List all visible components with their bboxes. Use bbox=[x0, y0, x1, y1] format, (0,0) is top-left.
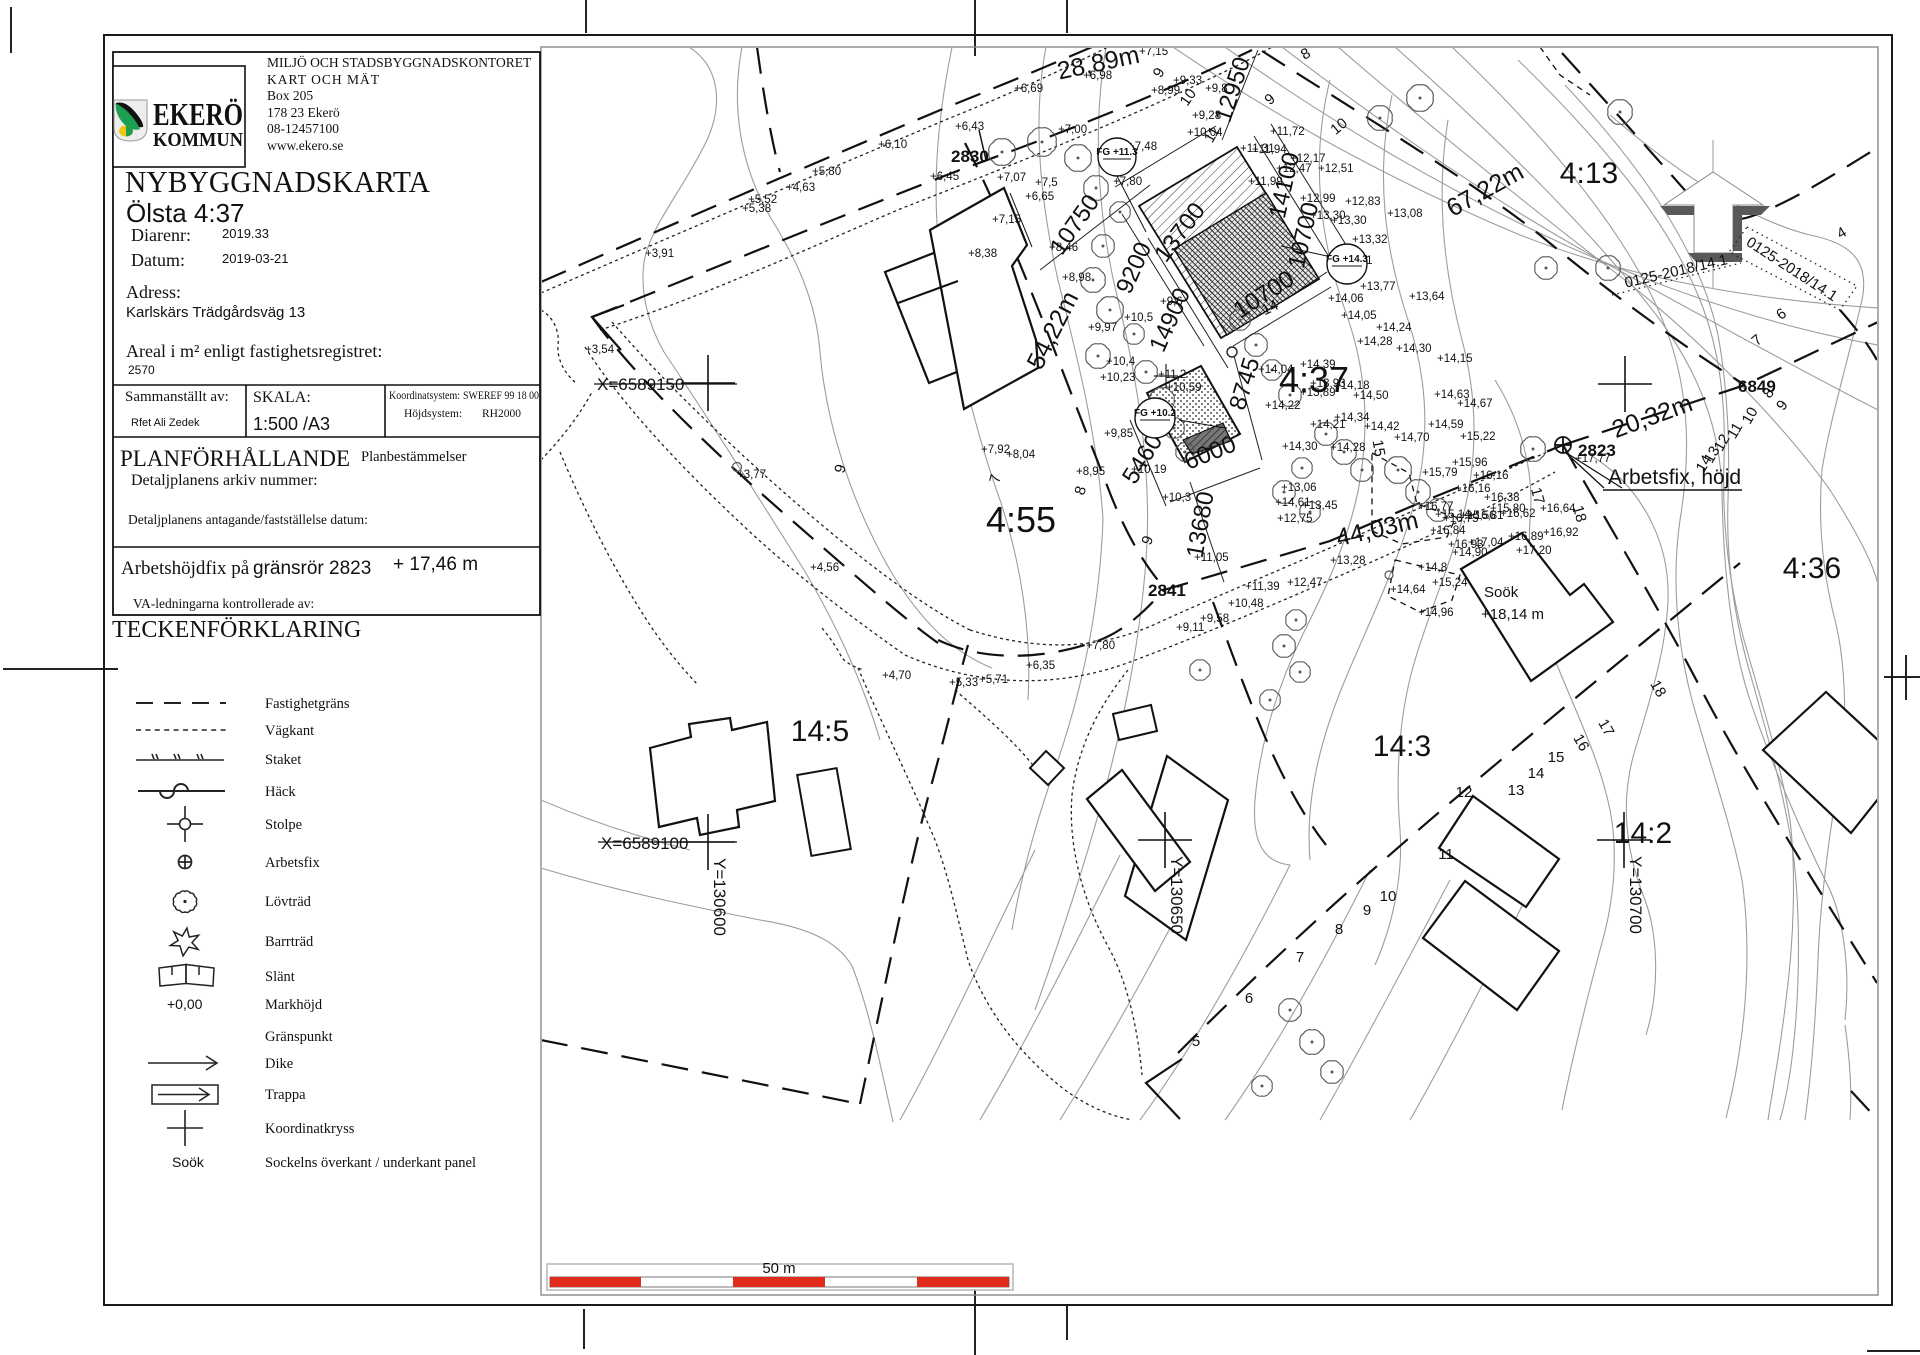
svg-text:+10,3: +10,3 bbox=[1162, 492, 1191, 504]
svg-text:Lövträd: Lövträd bbox=[265, 894, 312, 910]
svg-text:+6,69: +6,69 bbox=[1014, 83, 1043, 95]
svg-text:2841: 2841 bbox=[1148, 581, 1186, 600]
svg-text:+14,21: +14,21 bbox=[1310, 419, 1346, 431]
svg-text:+13,77: +13,77 bbox=[1360, 281, 1396, 293]
svg-text:Rfet Ali Zedek: Rfet Ali Zedek bbox=[131, 417, 200, 429]
svg-text:Arbetsfix, höjd: Arbetsfix, höjd bbox=[1608, 466, 1741, 489]
svg-text:+0,00: +0,00 bbox=[167, 996, 203, 1012]
svg-text:Häck: Häck bbox=[265, 784, 296, 800]
svg-text:+16,92: +16,92 bbox=[1543, 527, 1579, 539]
svg-text:+6,45: +6,45 bbox=[930, 171, 959, 183]
svg-text:+7,80: +7,80 bbox=[1113, 176, 1142, 188]
svg-text:Karlskärs Trädgårdsväg 13: Karlskärs Trädgårdsväg 13 bbox=[126, 304, 305, 321]
svg-text:+8,98: +8,98 bbox=[1062, 272, 1091, 284]
svg-text:Arbetshöjdfix på: Arbetshöjdfix på bbox=[121, 558, 250, 579]
svg-text:+13,45: +13,45 bbox=[1302, 500, 1338, 512]
svg-text:Detaljplanens arkiv nummer:: Detaljplanens arkiv nummer: bbox=[131, 472, 318, 489]
svg-text:+14,05: +14,05 bbox=[1341, 310, 1377, 322]
svg-text:+14,06: +14,06 bbox=[1328, 293, 1364, 305]
svg-text:2019-03-21: 2019-03-21 bbox=[222, 251, 289, 266]
svg-text:+11,31: +11,31 bbox=[1240, 143, 1275, 155]
svg-text:+14,30: +14,30 bbox=[1396, 343, 1432, 355]
svg-text:+5,80: +5,80 bbox=[812, 166, 841, 178]
svg-text:+13,30: +13,30 bbox=[1331, 215, 1367, 227]
svg-text:+14,96: +14,96 bbox=[1418, 607, 1454, 619]
svg-text:Koordinatsystem:: Koordinatsystem: bbox=[389, 390, 460, 402]
svg-text:Slänt: Slänt bbox=[265, 969, 295, 985]
svg-text:+12,51: +12,51 bbox=[1318, 163, 1354, 175]
svg-text:SWEREF 99 18 00: SWEREF 99 18 00 bbox=[463, 390, 539, 402]
svg-text:+9,97: +9,97 bbox=[1088, 322, 1117, 334]
svg-text:Adress:: Adress: bbox=[126, 282, 181, 302]
svg-text:+16,84: +16,84 bbox=[1430, 525, 1466, 537]
svg-text:www.ekero.se: www.ekero.se bbox=[267, 138, 343, 153]
svg-text:Sammanställt av:: Sammanställt av: bbox=[125, 389, 229, 405]
svg-text:2823: 2823 bbox=[1578, 441, 1616, 460]
svg-text:KART OCH MÄT: KART OCH MÄT bbox=[267, 72, 380, 87]
svg-text:+10,48: +10,48 bbox=[1228, 598, 1264, 610]
svg-text:+3,54: +3,54 bbox=[585, 344, 615, 356]
svg-text:+10,59: +10,59 bbox=[1166, 382, 1202, 394]
svg-text:Areal i m² enligt fastighetsre: Areal i m² enligt fastighetsregistret: bbox=[126, 341, 382, 361]
svg-text:Box 205: Box 205 bbox=[267, 88, 313, 103]
svg-text:X=6589150: X=6589150 bbox=[597, 375, 684, 394]
svg-text:Trappa: Trappa bbox=[265, 1087, 306, 1103]
svg-text:+ 17,46 m: + 17,46 m bbox=[393, 554, 478, 575]
svg-text:+14,67: +14,67 bbox=[1457, 398, 1493, 410]
svg-text:+12,83: +12,83 bbox=[1345, 196, 1381, 208]
svg-text:+7,15: +7,15 bbox=[992, 214, 1021, 226]
svg-text:+9,58: +9,58 bbox=[1200, 613, 1229, 625]
svg-text:+8,99: +8,99 bbox=[1151, 85, 1180, 97]
svg-text:+12,47: +12,47 bbox=[1287, 577, 1323, 589]
svg-text:Planbestämmelser: Planbestämmelser bbox=[361, 449, 467, 465]
svg-text:gränsrör 2823: gränsrör 2823 bbox=[253, 558, 371, 579]
svg-text:+5,33: +5,33 bbox=[949, 677, 978, 689]
svg-text:+15,56: +15,56 bbox=[1460, 510, 1496, 522]
svg-text:8: 8 bbox=[1335, 921, 1343, 938]
svg-text:TECKENFÖRKLARING: TECKENFÖRKLARING bbox=[112, 617, 361, 643]
svg-text:+13,06: +13,06 bbox=[1281, 482, 1317, 494]
svg-text:VA-ledningarna kontrollerade a: VA-ledningarna kontrollerade av: bbox=[133, 596, 314, 611]
svg-text:5: 5 bbox=[1192, 1033, 1200, 1050]
svg-text:4:37: 4:37 bbox=[1279, 359, 1349, 400]
svg-text:+9,11: +9,11 bbox=[1176, 622, 1204, 634]
svg-text:9: 9 bbox=[1363, 902, 1371, 919]
svg-text:15: 15 bbox=[1369, 439, 1389, 458]
svg-text:+14,64: +14,64 bbox=[1390, 584, 1426, 596]
svg-text:15: 15 bbox=[1548, 749, 1565, 766]
svg-text:Soök: Soök bbox=[1484, 584, 1519, 601]
svg-text:+11,72: +11,72 bbox=[1270, 126, 1305, 138]
svg-text:KOMMUN: KOMMUN bbox=[153, 129, 244, 151]
svg-text:+7,00: +7,00 bbox=[1058, 124, 1087, 136]
svg-text:Staket: Staket bbox=[265, 752, 301, 768]
svg-text:SKALA:: SKALA: bbox=[253, 389, 311, 406]
svg-text:+6,35: +6,35 bbox=[1026, 660, 1055, 672]
svg-text:+13,28: +13,28 bbox=[1330, 555, 1366, 567]
svg-text:+18,14 m: +18,14 m bbox=[1481, 606, 1544, 623]
svg-text:Gränspunkt: Gränspunkt bbox=[265, 1029, 333, 1045]
svg-text:+4,63: +4,63 bbox=[786, 182, 815, 194]
svg-text:+4,56: +4,56 bbox=[810, 562, 839, 574]
svg-text:+8,04: +8,04 bbox=[1006, 449, 1036, 461]
svg-text:Barrträd: Barrträd bbox=[265, 934, 314, 950]
svg-text:+12,75: +12,75 bbox=[1277, 513, 1313, 525]
svg-text:+11,39: +11,39 bbox=[1245, 581, 1280, 593]
svg-text:+16,16: +16,16 bbox=[1473, 470, 1509, 482]
svg-text:+7,5: +7,5 bbox=[1035, 177, 1058, 189]
svg-text:6849: 6849 bbox=[1738, 377, 1776, 396]
svg-text:FG +14.3: FG +14.3 bbox=[1326, 254, 1368, 265]
svg-text:+15,24: +15,24 bbox=[1432, 577, 1468, 589]
svg-text:4:13: 4:13 bbox=[1560, 157, 1618, 190]
svg-text:10: 10 bbox=[1380, 888, 1397, 905]
svg-text:+13,64: +13,64 bbox=[1409, 291, 1445, 303]
svg-text:+4,70: +4,70 bbox=[882, 670, 911, 682]
svg-text:08-12457100: 08-12457100 bbox=[267, 121, 339, 136]
svg-text:+3,77: +3,77 bbox=[737, 469, 766, 481]
svg-text:178 23 Ekerö: 178 23 Ekerö bbox=[267, 105, 340, 120]
svg-text:Diarenr:: Diarenr: bbox=[131, 225, 191, 245]
svg-text:14:2: 14:2 bbox=[1614, 817, 1672, 850]
svg-text:PLANFÖRHÅLLANDE: PLANFÖRHÅLLANDE bbox=[120, 446, 350, 471]
svg-text:+10,23: +10,23 bbox=[1100, 372, 1136, 384]
svg-text:+11,2: +11,2 bbox=[1158, 369, 1186, 381]
svg-text:+14,70: +14,70 bbox=[1394, 432, 1430, 444]
svg-text:+14,30: +14,30 bbox=[1282, 441, 1318, 453]
svg-text:+14,15: +14,15 bbox=[1437, 353, 1473, 365]
svg-text:Ölsta 4:37: Ölsta 4:37 bbox=[126, 198, 245, 228]
svg-text:Y=130600: Y=130600 bbox=[710, 858, 729, 936]
svg-text:FG +10.2: FG +10.2 bbox=[1134, 408, 1176, 419]
svg-text:+8,95: +8,95 bbox=[1076, 466, 1105, 478]
svg-text:+15,22: +15,22 bbox=[1460, 431, 1496, 443]
svg-text:EKERÖ: EKERÖ bbox=[153, 96, 243, 132]
svg-text:13: 13 bbox=[1508, 782, 1525, 799]
svg-text:+14,28: +14,28 bbox=[1330, 442, 1366, 454]
svg-text:+5,38: +5,38 bbox=[742, 203, 771, 215]
svg-text:+7,07: +7,07 bbox=[997, 172, 1026, 184]
svg-text:+14,59: +14,59 bbox=[1428, 419, 1464, 431]
svg-text:14:5: 14:5 bbox=[791, 715, 849, 748]
svg-text:+16,89: +16,89 bbox=[1508, 531, 1544, 543]
svg-text:Arbetsfix: Arbetsfix bbox=[265, 855, 321, 871]
svg-text:Koordinatkryss: Koordinatkryss bbox=[265, 1121, 355, 1137]
svg-text:FG +11.3: FG +11.3 bbox=[1096, 147, 1138, 158]
svg-text:+10,5: +10,5 bbox=[1124, 312, 1153, 324]
svg-text:+6,10: +6,10 bbox=[878, 139, 907, 151]
svg-text:1:500 /A3: 1:500 /A3 bbox=[253, 414, 330, 434]
svg-text:14: 14 bbox=[1528, 765, 1545, 782]
svg-text:2570: 2570 bbox=[128, 363, 155, 377]
svg-text:14:3: 14:3 bbox=[1373, 730, 1431, 763]
svg-text:12: 12 bbox=[1456, 784, 1473, 801]
svg-text:+14,90: +14,90 bbox=[1452, 547, 1488, 559]
svg-text:NYBYGGNADSKARTA: NYBYGGNADSKARTA bbox=[125, 164, 431, 199]
svg-text:Vägkant: Vägkant bbox=[265, 723, 314, 739]
svg-text:11: 11 bbox=[1438, 846, 1454, 863]
svg-text:+14,8: +14,8 bbox=[1418, 562, 1447, 574]
svg-text:X=6589100: X=6589100 bbox=[601, 834, 688, 853]
svg-text:+13,08: +13,08 bbox=[1387, 208, 1423, 220]
svg-text:Sockelns överkant / underkant: Sockelns överkant / underkant panel bbox=[265, 1155, 476, 1171]
svg-text:+14,28: +14,28 bbox=[1357, 336, 1393, 348]
svg-text:+7,92: +7,92 bbox=[981, 444, 1010, 456]
svg-text:+14,24: +14,24 bbox=[1376, 322, 1412, 334]
svg-text:+14,22: +14,22 bbox=[1265, 400, 1301, 412]
svg-text:+14,50: +14,50 bbox=[1353, 390, 1389, 402]
svg-text:Datum:: Datum: bbox=[131, 250, 185, 270]
svg-text:Markhöjd: Markhöjd bbox=[265, 997, 323, 1013]
svg-text:+9,85: +9,85 bbox=[1104, 428, 1133, 440]
svg-text:+17,20: +17,20 bbox=[1516, 545, 1552, 557]
svg-text:Höjdsystem:: Höjdsystem: bbox=[404, 408, 462, 420]
svg-text:+15,96: +15,96 bbox=[1452, 457, 1488, 469]
svg-text:Dike: Dike bbox=[265, 1056, 293, 1072]
svg-text:+6,65: +6,65 bbox=[1025, 191, 1054, 203]
svg-text:Fastighetgräns: Fastighetgräns bbox=[265, 696, 350, 712]
svg-text:+13,32: +13,32 bbox=[1352, 234, 1388, 246]
svg-text:6: 6 bbox=[1245, 990, 1253, 1007]
svg-text:7: 7 bbox=[1296, 949, 1304, 966]
svg-text:+7,80: +7,80 bbox=[1086, 640, 1115, 652]
svg-text:+10,4: +10,4 bbox=[1106, 356, 1136, 368]
svg-text:4:55: 4:55 bbox=[986, 499, 1056, 540]
svg-text:Detaljplanens antagande/fastst: Detaljplanens antagande/fastställelse da… bbox=[128, 512, 368, 527]
svg-text:Y=130700: Y=130700 bbox=[1626, 856, 1645, 934]
svg-text:MILJÖ OCH STADSBYGGNADSKONTORE: MILJÖ OCH STADSBYGGNADSKONTORET bbox=[267, 55, 532, 70]
svg-text:Soök: Soök bbox=[172, 1154, 205, 1170]
svg-text:50 m: 50 m bbox=[762, 1260, 795, 1277]
svg-text:4:36: 4:36 bbox=[1783, 552, 1841, 585]
svg-text:Stolpe: Stolpe bbox=[265, 817, 302, 833]
svg-text:Y=130650: Y=130650 bbox=[1167, 856, 1186, 934]
svg-text:2019.33: 2019.33 bbox=[222, 226, 269, 241]
svg-text:RH2000: RH2000 bbox=[482, 408, 521, 420]
svg-text:+3,91: +3,91 bbox=[645, 248, 674, 260]
svg-text:+5,71: +5,71 bbox=[979, 674, 1008, 686]
svg-text:+8,38: +8,38 bbox=[968, 248, 997, 260]
